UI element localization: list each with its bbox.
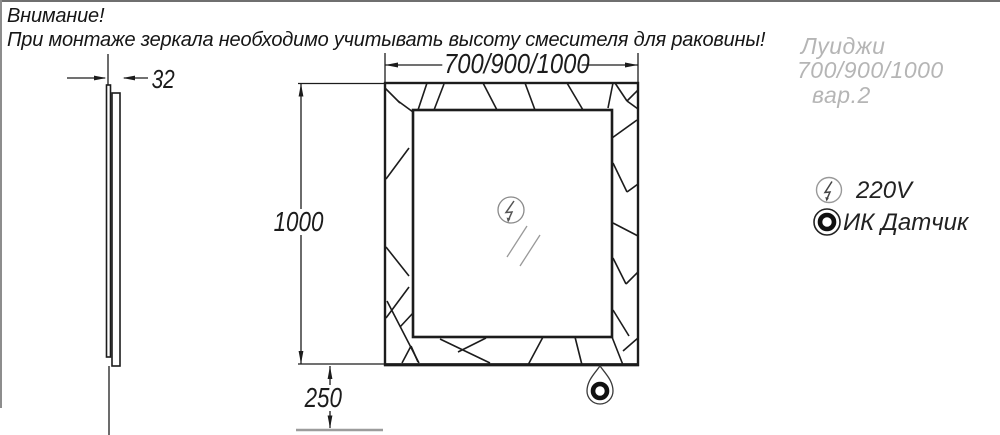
product-sizes: 700/900/1000 [797, 58, 944, 83]
thickness-dim-label: 32 [150, 66, 176, 92]
ir-sensor-pin-icon [587, 366, 613, 404]
legend-power-label: 220V [856, 177, 912, 205]
height-dim-label: 1000 [272, 209, 325, 235]
notice-title: Внимание! [7, 5, 104, 28]
legend-ir-sensor-icon [814, 209, 840, 235]
product-variant: вар.2 [812, 83, 871, 108]
notice-body: При монтаже зеркала необходимо учитывать… [7, 29, 765, 52]
side-view-profile [107, 54, 121, 435]
offset-dim-label: 250 [303, 385, 344, 411]
product-name: Луиджи [801, 34, 885, 59]
width-dim-label: 700/900/1000 [442, 51, 581, 77]
mirror-frame [384, 83, 639, 365]
technical-drawing-sheet: Внимание! При монтаже зеркала необходимо… [0, 0, 1000, 435]
legend-power-icon [817, 178, 842, 203]
legend-ir-sensor-label: ИК Датчик [843, 209, 968, 237]
